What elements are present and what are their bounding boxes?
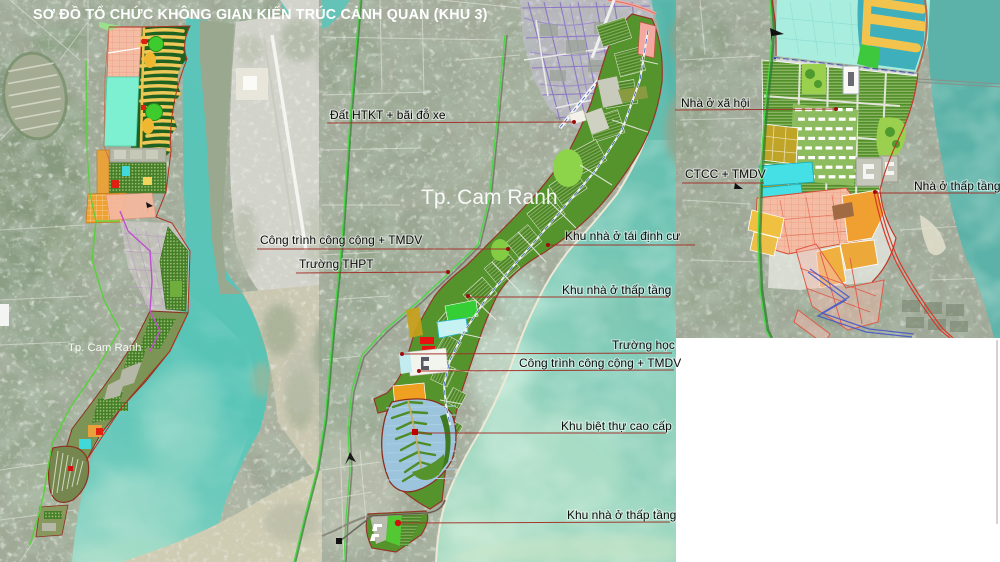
svg-text:CTCC + TMDV: CTCC + TMDV: [685, 167, 766, 181]
svg-text:Trường THPT: Trường THPT: [299, 257, 374, 271]
svg-text:Khu nhà ở tái định cư: Khu nhà ở tái định cư: [565, 229, 680, 243]
svg-text:Công trình công cộng + TMDV: Công trình công cộng + TMDV: [519, 356, 681, 370]
svg-text:Khu nhà ở thấp tầng: Khu nhà ở thấp tầng: [562, 283, 671, 297]
svg-text:Trường học: Trường học: [612, 338, 675, 352]
svg-text:SƠ ĐỒ TỔ CHỨC KHÔNG GIAN KIẾN: SƠ ĐỒ TỔ CHỨC KHÔNG GIAN KIẾN TRÚC CẢNH …: [33, 5, 488, 23]
svg-text:Nhà ở thấp tầng: Nhà ở thấp tầng: [914, 179, 1000, 193]
svg-text:Nhà ở xã hội: Nhà ở xã hội: [681, 96, 750, 110]
svg-text:Tp. Cam Ranh: Tp. Cam Ranh: [421, 186, 558, 209]
svg-text:Khu nhà ở thấp tầng: Khu nhà ở thấp tầng: [567, 508, 676, 522]
svg-text:Tp. Cam Ranh: Tp. Cam Ranh: [68, 342, 141, 354]
svg-text:Khu biệt thự cao cấp: Khu biệt thự cao cấp: [561, 419, 672, 433]
svg-text:Công trình công cộng + TMDV: Công trình công cộng + TMDV: [260, 233, 422, 247]
svg-text:Đất HTKT + bãi đỗ xe: Đất HTKT + bãi đỗ xe: [330, 107, 446, 122]
